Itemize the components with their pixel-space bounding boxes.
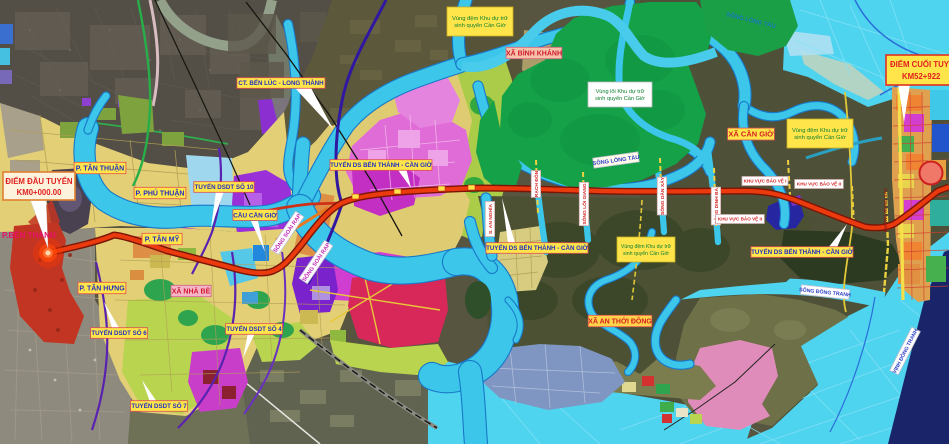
svg-text:TUYẾN DSDT SỐ 10: TUYẾN DSDT SỐ 10 (195, 184, 254, 191)
svg-text:XÃ BÌNH KHÁNH: XÃ BÌNH KHÁNH (506, 49, 562, 58)
svg-text:TUYẾN DS BẾN THÀNH - CẦN GIỜ: TUYẾN DS BẾN THÀNH - CẦN GIỜ (486, 244, 589, 252)
svg-text:KHU VỰC BẢO VỆ I: KHU VỰC BẢO VỆ I (744, 177, 787, 184)
svg-text:sinh quyển Cần Giờ: sinh quyển Cần Giờ (595, 95, 645, 102)
svg-text:KHU VỰC BẢO VỆ II: KHU VỰC BẢO VỆ II (797, 180, 841, 187)
svg-text:Vùng đệm Khu dự trữ: Vùng đệm Khu dự trữ (452, 16, 508, 22)
svg-text:S. AN NGHĨA: S. AN NGHĨA (487, 204, 494, 234)
svg-text:TUYẾN DS BẾN THÀNH - CẦN GIỜ: TUYẾN DS BẾN THÀNH - CẦN GIỜ (751, 248, 854, 256)
svg-text:sinh quyển Cần Giờ: sinh quyển Cần Giờ (794, 134, 846, 141)
svg-text:XÃ AN THỚI ĐÔNG: XÃ AN THỚI ĐÔNG (588, 317, 652, 326)
svg-text:ĐƯỜNG RỪNG SÁC: ĐƯỜNG RỪNG SÁC (881, 187, 888, 232)
svg-text:P. PHÚ THUẬN: P. PHÚ THUẬN (136, 189, 185, 198)
svg-text:Vùng đệm Khu dự trữ: Vùng đệm Khu dự trữ (792, 128, 848, 134)
svg-text:KM0+000.00: KM0+000.00 (17, 188, 63, 197)
svg-text:TUYẾN DSDT SỐ 6: TUYẾN DSDT SỐ 6 (91, 330, 147, 337)
svg-text:XÃ NHÀ BÈ: XÃ NHÀ BÈ (172, 287, 211, 296)
svg-text:CT. BẾN LÚC - LONG THÀNH: CT. BẾN LÚC - LONG THÀNH (238, 80, 324, 87)
svg-text:TUYẾN DSDT SỐ 4: TUYẾN DSDT SỐ 4 (226, 326, 282, 333)
svg-text:TUYẾN DSDT SỐ 7: TUYẾN DSDT SỐ 7 (131, 403, 187, 410)
svg-text:Vùng lõi Khu dự trữ: Vùng lõi Khu dự trữ (596, 89, 645, 95)
svg-text:P. TÂN MỸ: P. TÂN MỸ (145, 235, 180, 244)
svg-text:sinh quyển Cần Giờ: sinh quyển Cần Giờ (454, 22, 506, 29)
svg-text:KM52+922: KM52+922 (902, 72, 941, 81)
svg-text:P.BẾN THÀNH: P.BẾN THÀNH (2, 230, 56, 240)
svg-text:sinh quyển Cần Giờ: sinh quyển Cần Giờ (623, 250, 670, 257)
svg-text:KHU VỰC BẢO VỆ II: KHU VỰC BẢO VỆ II (718, 215, 762, 222)
svg-text:P. TÂN THUẬN: P. TÂN THUẬN (76, 164, 124, 173)
svg-text:P. TÂN HƯNG: P. TÂN HƯNG (79, 284, 125, 293)
svg-text:XÃ CẦN GIỜ: XÃ CẦN GIỜ (728, 129, 774, 139)
svg-text:ĐIỂM ĐẦU TUYẾN: ĐIỂM ĐẦU TUYẾN (5, 176, 73, 186)
svg-text:TUYẾN DS BẾN THÀNH - CẦN GIỜ: TUYẾN DS BẾN THÀNH - CẦN GIỜ (330, 161, 433, 169)
svg-text:ĐIỂM CUỐI TUYẾN: ĐIỂM CUỐI TUYẾN (890, 59, 949, 69)
svg-text:Vùng đệm Khu dự trữ: Vùng đệm Khu dự trữ (621, 244, 672, 250)
